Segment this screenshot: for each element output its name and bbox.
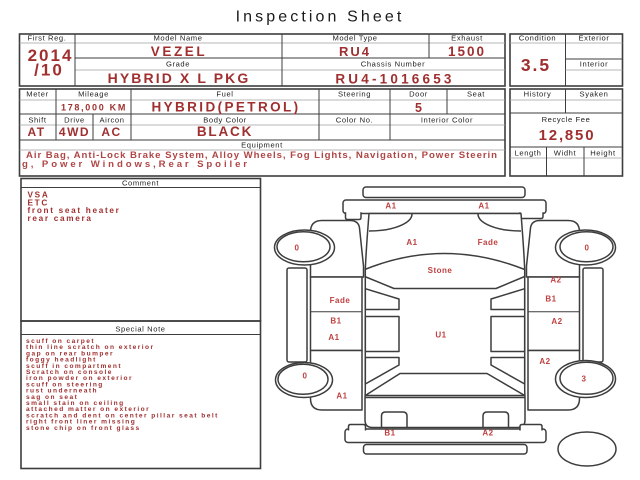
svg-text:4WD: 4WD xyxy=(59,125,90,139)
svg-text:Recycle Fee: Recycle Fee xyxy=(542,115,591,124)
svg-text:Interior: Interior xyxy=(580,60,608,69)
svg-text:A2: A2 xyxy=(550,276,561,285)
svg-text:Fade: Fade xyxy=(330,296,351,305)
svg-text:Drive: Drive xyxy=(64,115,85,124)
svg-text:BLACK: BLACK xyxy=(197,124,253,139)
svg-text:A2: A2 xyxy=(482,429,493,438)
svg-text:Syaken: Syaken xyxy=(580,90,609,99)
svg-text:3: 3 xyxy=(582,375,587,384)
svg-text:Interior Color: Interior Color xyxy=(421,115,473,124)
svg-text:RU4-1016653: RU4-1016653 xyxy=(335,72,454,87)
svg-text:Exterior: Exterior xyxy=(579,34,610,43)
svg-text:A1: A1 xyxy=(336,392,347,401)
svg-text:Chassis Number: Chassis Number xyxy=(361,60,426,69)
svg-text:Condition: Condition xyxy=(519,34,556,43)
svg-text:Meter: Meter xyxy=(26,90,48,99)
svg-text:B1: B1 xyxy=(330,317,341,326)
svg-text:HYBRID X L PKG: HYBRID X L PKG xyxy=(108,70,251,86)
svg-text:Mileage: Mileage xyxy=(78,90,109,99)
svg-text:/10: /10 xyxy=(34,61,64,80)
svg-text:0: 0 xyxy=(585,244,590,253)
svg-text:Exhaust: Exhaust xyxy=(451,34,483,43)
svg-text:Shift: Shift xyxy=(28,115,46,124)
svg-text:First Reg.: First Reg. xyxy=(28,34,67,43)
svg-text:Comment: Comment xyxy=(122,179,159,188)
svg-text:Color No.: Color No. xyxy=(336,115,373,124)
svg-text:A1: A1 xyxy=(328,333,339,342)
svg-text:A2: A2 xyxy=(539,357,550,366)
svg-text:rear camera: rear camera xyxy=(28,214,93,223)
svg-text:A2: A2 xyxy=(551,317,562,326)
svg-text:RU4: RU4 xyxy=(339,44,371,59)
svg-text:Stone: Stone xyxy=(428,266,453,275)
svg-text:Fade: Fade xyxy=(478,238,499,247)
svg-text:Fuel: Fuel xyxy=(216,90,233,99)
svg-text:Inspection Sheet: Inspection Sheet xyxy=(236,9,405,26)
svg-text:U1: U1 xyxy=(435,331,446,340)
svg-text:12,850: 12,850 xyxy=(539,127,596,144)
svg-text:Aircon: Aircon xyxy=(99,115,124,124)
svg-text:Length: Length xyxy=(515,149,542,158)
svg-text:Grade: Grade xyxy=(166,60,190,69)
svg-text:Body Color: Body Color xyxy=(203,115,247,124)
svg-text:A1: A1 xyxy=(385,202,396,211)
svg-text:HYBRID(PETROL): HYBRID(PETROL) xyxy=(151,100,300,115)
svg-text:VEZEL: VEZEL xyxy=(151,44,208,59)
svg-text:5: 5 xyxy=(415,101,422,115)
svg-text:A1: A1 xyxy=(406,238,417,247)
svg-text:Seat: Seat xyxy=(467,90,485,99)
svg-text:B1: B1 xyxy=(384,429,395,438)
svg-text:A1: A1 xyxy=(478,202,489,211)
svg-text:0: 0 xyxy=(295,244,300,253)
svg-text:1500: 1500 xyxy=(448,44,486,59)
svg-text:Model Type: Model Type xyxy=(332,34,377,43)
svg-text:178,000 KM: 178,000 KM xyxy=(61,103,127,113)
svg-text:AC: AC xyxy=(101,125,121,139)
svg-text:Height: Height xyxy=(590,149,616,158)
svg-text:B1: B1 xyxy=(545,295,556,304)
svg-text:AT: AT xyxy=(27,125,45,139)
svg-text:3.5: 3.5 xyxy=(521,55,551,75)
svg-text:0: 0 xyxy=(303,372,308,381)
svg-text:stone chip on front glass: stone chip on front glass xyxy=(26,425,141,432)
svg-text:g, Power Windows,Rear Spoiler: g, Power Windows,Rear Spoiler xyxy=(22,159,250,170)
svg-text:History: History xyxy=(524,90,552,99)
svg-text:Special Note: Special Note xyxy=(115,325,165,334)
svg-text:Equipment: Equipment xyxy=(241,141,283,150)
svg-text:Model Name: Model Name xyxy=(153,34,202,43)
svg-text:Steering: Steering xyxy=(338,90,371,99)
svg-text:Door: Door xyxy=(409,90,428,99)
svg-text:Widht: Widht xyxy=(554,149,577,158)
